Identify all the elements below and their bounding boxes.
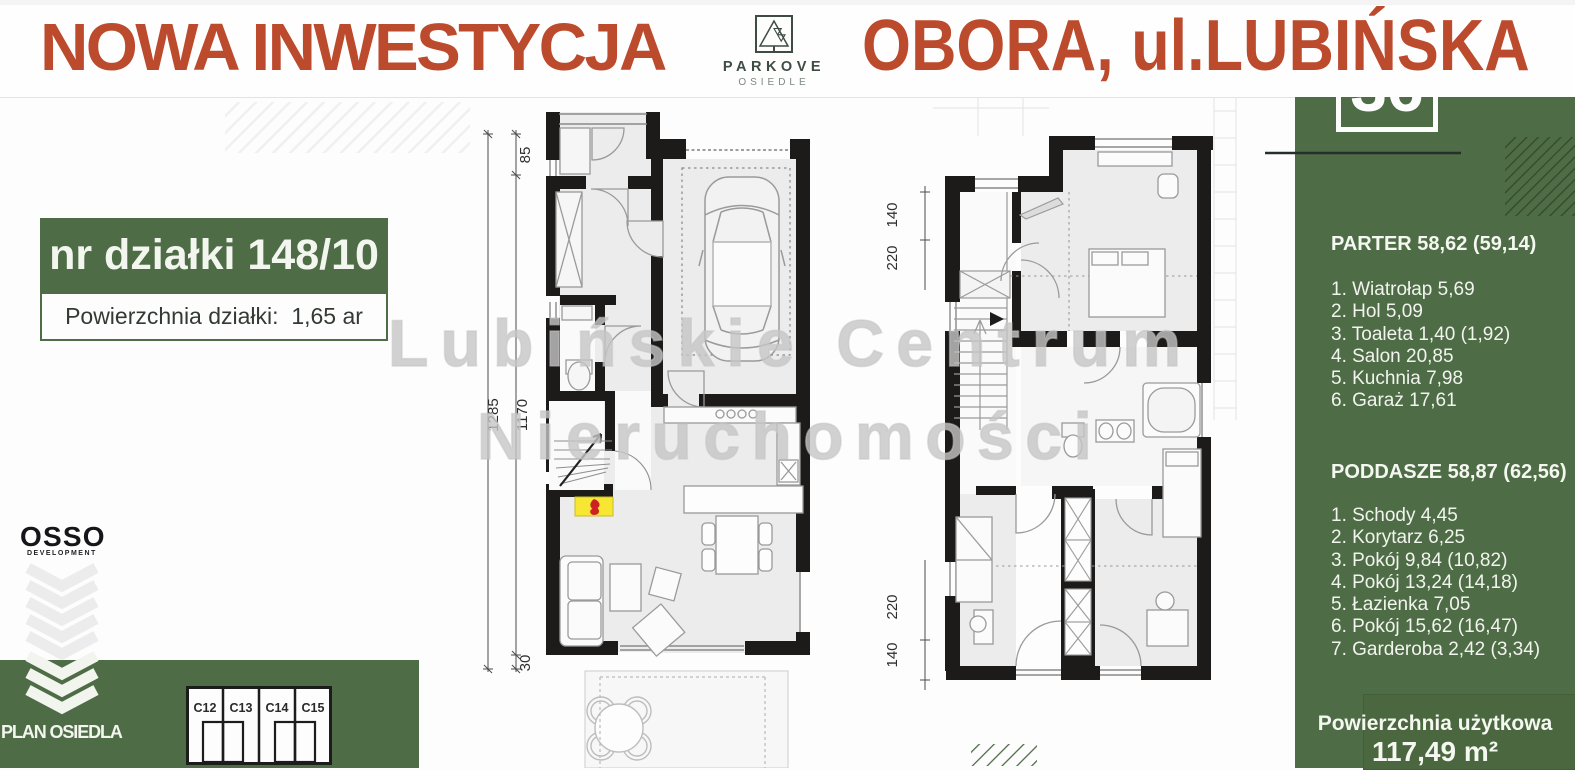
svg-text:140: 140: [884, 642, 901, 667]
svg-text:85: 85: [517, 147, 534, 164]
svg-text:30: 30: [517, 655, 534, 672]
svg-text:220: 220: [884, 594, 901, 619]
svg-text:140: 140: [884, 202, 901, 227]
svg-text:PARKOVE: PARKOVE: [723, 59, 825, 75]
svg-text:220: 220: [884, 245, 901, 270]
svg-text:OSIEDLE: OSIEDLE: [738, 77, 809, 88]
